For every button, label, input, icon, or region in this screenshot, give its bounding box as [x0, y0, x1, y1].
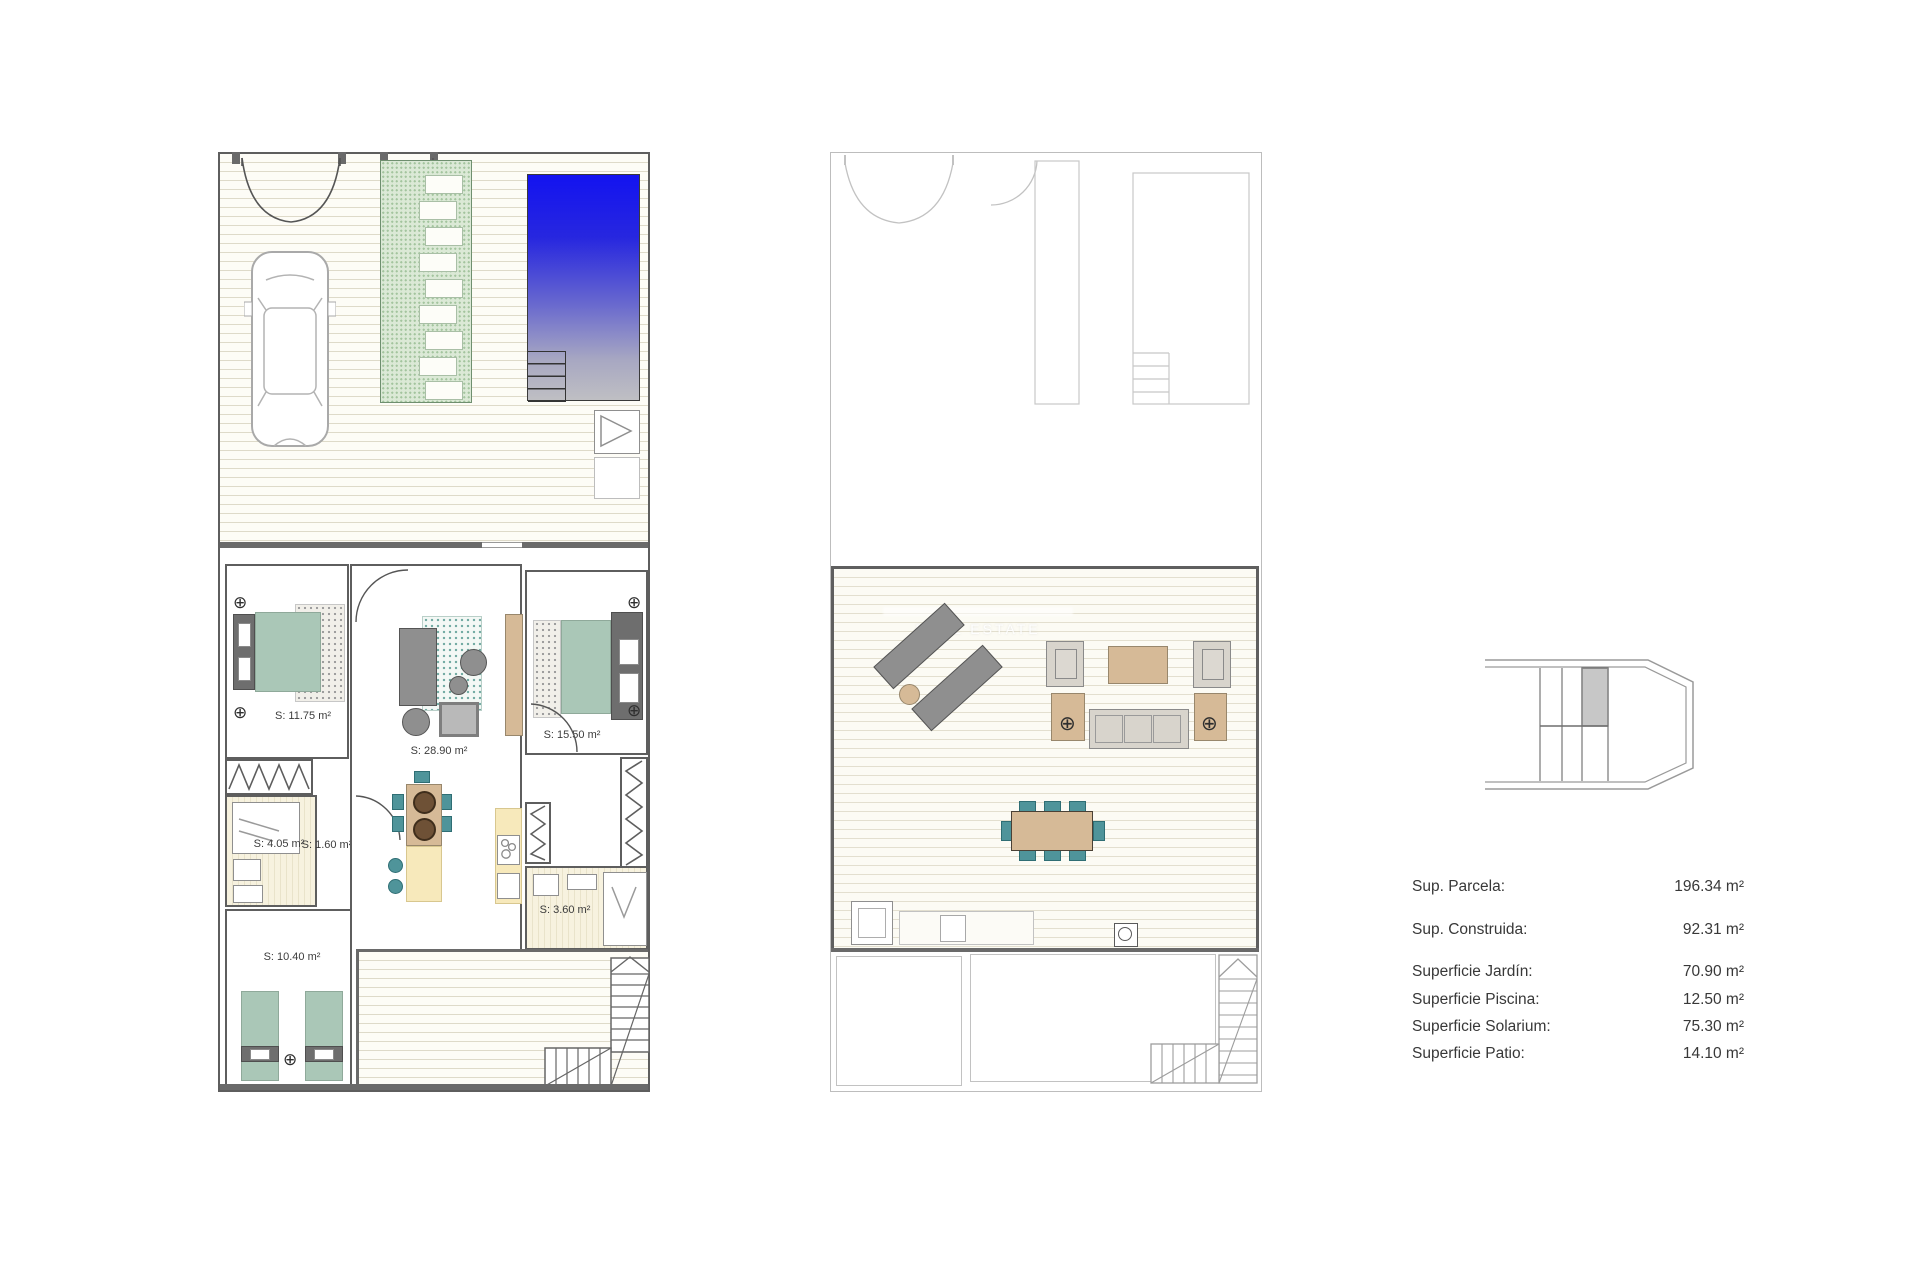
armchair: [1193, 641, 1231, 688]
wardrobe: [620, 757, 648, 869]
solarium-plan: REAL ESTATE ⊕ ⊕: [830, 152, 1262, 1092]
pouf-round: [449, 676, 468, 695]
surface-summary-table: Sup. Parcela: 196.34 m² Sup. Construida:…: [1412, 878, 1744, 1063]
armchair-round: [460, 649, 487, 676]
summary-row: Superficie Piscina: 12.50 m²: [1412, 991, 1744, 1009]
floor-plan-sheet: { "rooms": { "bedroom_1175": "S: 11.75 m…: [0, 0, 1920, 1280]
ceiling-light-icon: ⊕: [627, 702, 641, 719]
ceiling-light-icon: ⊕: [233, 594, 247, 611]
summary-label: Sup. Construida:: [1412, 921, 1527, 939]
bedroom-1175: ⊕ ⊕ S: 11.75 m²: [225, 564, 349, 759]
garden-interior-wall: [220, 542, 648, 548]
outdoor-storage: [594, 457, 640, 499]
summary-row: Superficie Solarium: 75.30 m²: [1412, 1018, 1744, 1036]
summary-label: Superficie Patio:: [1412, 1045, 1525, 1063]
summary-value: 14.10 m²: [1683, 1045, 1744, 1063]
ground-floor-plan: ⊕ ⊕ S: 11.75 m² S: 4.05 m² S: 1.60 m² ⊕ …: [218, 152, 650, 1092]
watermark-bar: [883, 607, 1073, 616]
room-label: S: 11.75 m²: [275, 710, 331, 722]
interior-entry-gap: [482, 542, 522, 548]
room-label: S: 1.60 m²: [302, 839, 353, 851]
stool: [388, 879, 403, 894]
kitchen-island: [406, 846, 442, 902]
summary-value: 92.31 m²: [1683, 921, 1744, 939]
room-label: S: 28.90 m²: [411, 745, 468, 757]
dining-table: [406, 784, 442, 846]
coffee-table: [1108, 646, 1168, 684]
solarium-side-wall: [1256, 566, 1259, 948]
outdoor-shower: [594, 410, 640, 454]
pouf-large: [402, 708, 430, 736]
dining-chair: [392, 816, 404, 832]
ceiling-light-icon: ⊕: [1201, 716, 1218, 733]
location-key-plan: [1485, 655, 1710, 795]
stool: [388, 858, 403, 873]
toilet: [233, 859, 261, 881]
solarium-side-wall: [831, 566, 834, 948]
swimming-pool: [527, 174, 640, 401]
ghost-stairs: [831, 953, 1261, 1091]
solarium-sink-unit: [851, 901, 893, 945]
ceiling-light-icon: ⊕: [283, 1051, 297, 1068]
car: [244, 246, 336, 452]
bottom-wall: [220, 1084, 648, 1090]
outdoor-dining-table: [1011, 811, 1093, 851]
single-bed: [241, 991, 279, 1081]
sink: [233, 885, 263, 903]
floor-drain: [1114, 923, 1138, 947]
dining-chair: [1093, 821, 1105, 841]
bathroom-360: S: 3.60 m²: [525, 866, 648, 950]
dining-chair: [414, 771, 430, 783]
bathroom-405: S: 4.05 m²: [225, 795, 317, 907]
lounger-side-table: [899, 684, 920, 705]
ceiling-light-icon: ⊕: [233, 704, 247, 721]
room-label: S: 4.05 m²: [254, 838, 305, 850]
toilet: [533, 874, 559, 896]
side-table-heater: ⊕: [1194, 693, 1227, 741]
summary-row: Superficie Patio: 14.10 m²: [1412, 1045, 1744, 1063]
patio-stairs: [359, 952, 651, 1088]
summary-value: 75.30 m²: [1683, 1018, 1744, 1036]
single-bed: [305, 991, 343, 1081]
sink: [567, 874, 597, 890]
double-bed: [561, 620, 611, 714]
side-table: [439, 702, 479, 737]
summary-row: Superficie Jardín: 70.90 m²: [1412, 963, 1744, 981]
summary-label: Superficie Solarium:: [1412, 1018, 1551, 1036]
kitchen-counter: [495, 808, 522, 904]
bed-headboard: [233, 614, 255, 690]
summary-value: 196.34 m²: [1674, 878, 1744, 896]
l-sofa: [399, 628, 437, 706]
shower: [603, 872, 647, 946]
room-label: S: 3.60 m²: [540, 904, 591, 916]
living-door-arc: [354, 568, 410, 624]
summary-label: Superficie Piscina:: [1412, 991, 1540, 1009]
pool-steps: [528, 351, 566, 402]
summary-value: 70.90 m²: [1683, 963, 1744, 981]
double-bed: [255, 612, 321, 692]
hob: [497, 835, 520, 865]
summary-row: Sup. Construida: 92.31 m²: [1412, 921, 1744, 939]
armchair: [1046, 641, 1084, 687]
bedroom-1550: ⊕ ⊕ S: 15.50 m²: [525, 570, 648, 755]
solarium-bottom-wall: [831, 948, 1259, 952]
garden-path: [380, 160, 472, 403]
room-label: S: 10.40 m²: [264, 951, 321, 963]
summary-label: Sup. Parcela:: [1412, 878, 1505, 896]
wardrobe: [225, 759, 313, 795]
dining-chair: [392, 794, 404, 810]
kitchen-sink: [497, 873, 520, 899]
summary-label: Superficie Jardín:: [1412, 963, 1533, 981]
tv-sideboard: [505, 614, 523, 736]
entry-double-door-arc: [236, 156, 346, 228]
solarium-counter: [899, 911, 1034, 945]
bedroom-door-arc: [529, 702, 579, 754]
outdoor-sofa: [1089, 709, 1189, 749]
summary-row: Sup. Parcela: 196.34 m²: [1412, 878, 1744, 896]
bedroom-1040: ⊕ S: 10.40 m²: [225, 909, 353, 1087]
side-table-heater: ⊕: [1051, 693, 1085, 741]
patio-deck: [356, 949, 648, 1085]
wardrobe: [525, 802, 551, 864]
summary-value: 12.50 m²: [1683, 991, 1744, 1009]
ghost-floor-outline: [831, 153, 1261, 565]
ceiling-light-icon: ⊕: [627, 594, 641, 611]
ceiling-light-icon: ⊕: [1059, 716, 1076, 733]
highlighted-unit: [1582, 668, 1608, 726]
